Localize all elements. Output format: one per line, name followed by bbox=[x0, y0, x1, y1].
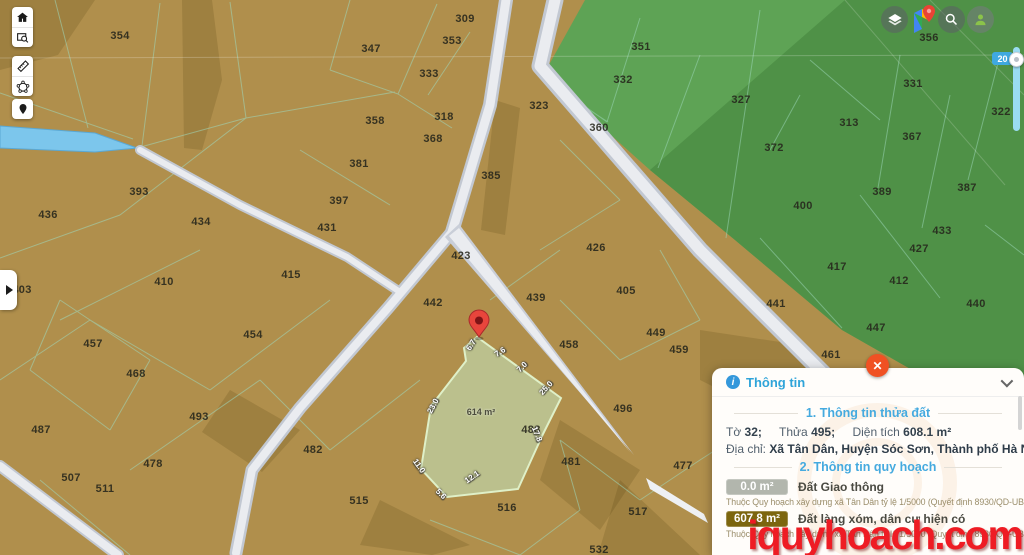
section-planning-info: 2. Thông tin quy hoạch bbox=[726, 460, 1010, 474]
address-line: Địa chỉ: Xã Tân Dân, Huyện Sóc Sơn, Thàn… bbox=[726, 442, 1010, 456]
planning-rows: 0.0 m²Đất Giao thôngThuộc Quy hoạch xây … bbox=[726, 479, 1010, 539]
plot-value: 495; bbox=[811, 425, 835, 439]
toolbar-group-locate bbox=[12, 99, 33, 119]
sheet-value: 32; bbox=[745, 425, 762, 439]
address-label: Địa chỉ: bbox=[726, 442, 766, 456]
home-button[interactable] bbox=[12, 7, 33, 27]
measure-button[interactable] bbox=[12, 56, 33, 76]
panel-scrollbar[interactable] bbox=[1018, 396, 1022, 430]
chevron-right-icon bbox=[5, 285, 13, 295]
sheet-label: Tờ bbox=[726, 425, 741, 439]
chevron-down-icon[interactable] bbox=[1001, 374, 1014, 387]
panel-title: Thông tin bbox=[746, 375, 805, 390]
search-icon bbox=[944, 12, 959, 27]
location-pin-icon bbox=[17, 102, 29, 116]
info-panel-body: 1. Thông tin thửa đất Tờ 32; Thửa 495; D… bbox=[712, 397, 1024, 539]
planning-row: 0.0 m²Đất Giao thôngThuộc Quy hoạch xây … bbox=[726, 479, 1010, 507]
toolbar-group-navigation bbox=[12, 7, 33, 47]
google-maps-icon bbox=[908, 3, 938, 35]
planning-source-note: Thuộc Quy hoạch xây dựng xã Tân Dân tỷ l… bbox=[726, 497, 1010, 507]
user-icon bbox=[973, 12, 988, 27]
info-icon: i bbox=[726, 375, 740, 389]
toolbar-group-measure bbox=[12, 56, 33, 96]
ruler-icon bbox=[16, 59, 30, 73]
section-parcel-info: 1. Thông tin thửa đất bbox=[726, 406, 1010, 420]
home-icon bbox=[16, 11, 29, 24]
landuse-area-badge: 607.8 m² bbox=[726, 511, 788, 527]
planning-source-note: Thuộc Quy hoạch xây dựng xã Tân Dân tỷ l… bbox=[726, 529, 1010, 539]
landuse-type-label: Đất Giao thông bbox=[798, 480, 884, 494]
map-viewport[interactable]: 3543093533473333233513323603273133313563… bbox=[0, 0, 1024, 555]
parcel-info-line: Tờ 32; Thửa 495; Diện tích 608.1 m² bbox=[726, 425, 1010, 439]
locate-pin-button[interactable] bbox=[12, 99, 33, 119]
polygon-draw-icon bbox=[16, 80, 30, 94]
address-value: Xã Tân Dân, Huyện Sóc Sơn, Thành phố Hà … bbox=[769, 442, 1024, 456]
area-value: 608.1 m² bbox=[903, 425, 951, 439]
planning-row: 607.8 m²Đất làng xóm, dân cư hiện cóThuộ… bbox=[726, 511, 1010, 539]
draw-polygon-button[interactable] bbox=[12, 76, 33, 96]
layers-icon bbox=[887, 12, 903, 28]
sidebar-expander[interactable] bbox=[0, 270, 17, 310]
landuse-area-badge: 0.0 m² bbox=[726, 479, 788, 495]
search-button[interactable] bbox=[938, 6, 965, 33]
google-maps-button[interactable] bbox=[908, 3, 938, 40]
info-panel: i Thông tin 1. Thông tin thửa đất Tờ 32;… bbox=[712, 368, 1024, 555]
close-panel-button[interactable]: ✕ bbox=[866, 354, 889, 377]
zoom-slider-knob[interactable] bbox=[1009, 52, 1024, 67]
area-label: Diện tích bbox=[852, 425, 899, 439]
plot-label: Thửa bbox=[779, 425, 808, 439]
area-zoom-button[interactable] bbox=[12, 27, 33, 47]
area-zoom-icon bbox=[16, 31, 29, 44]
layers-button[interactable] bbox=[881, 6, 908, 33]
landuse-type-label: Đất làng xóm, dân cư hiện có bbox=[798, 512, 965, 526]
user-button[interactable] bbox=[967, 6, 994, 33]
